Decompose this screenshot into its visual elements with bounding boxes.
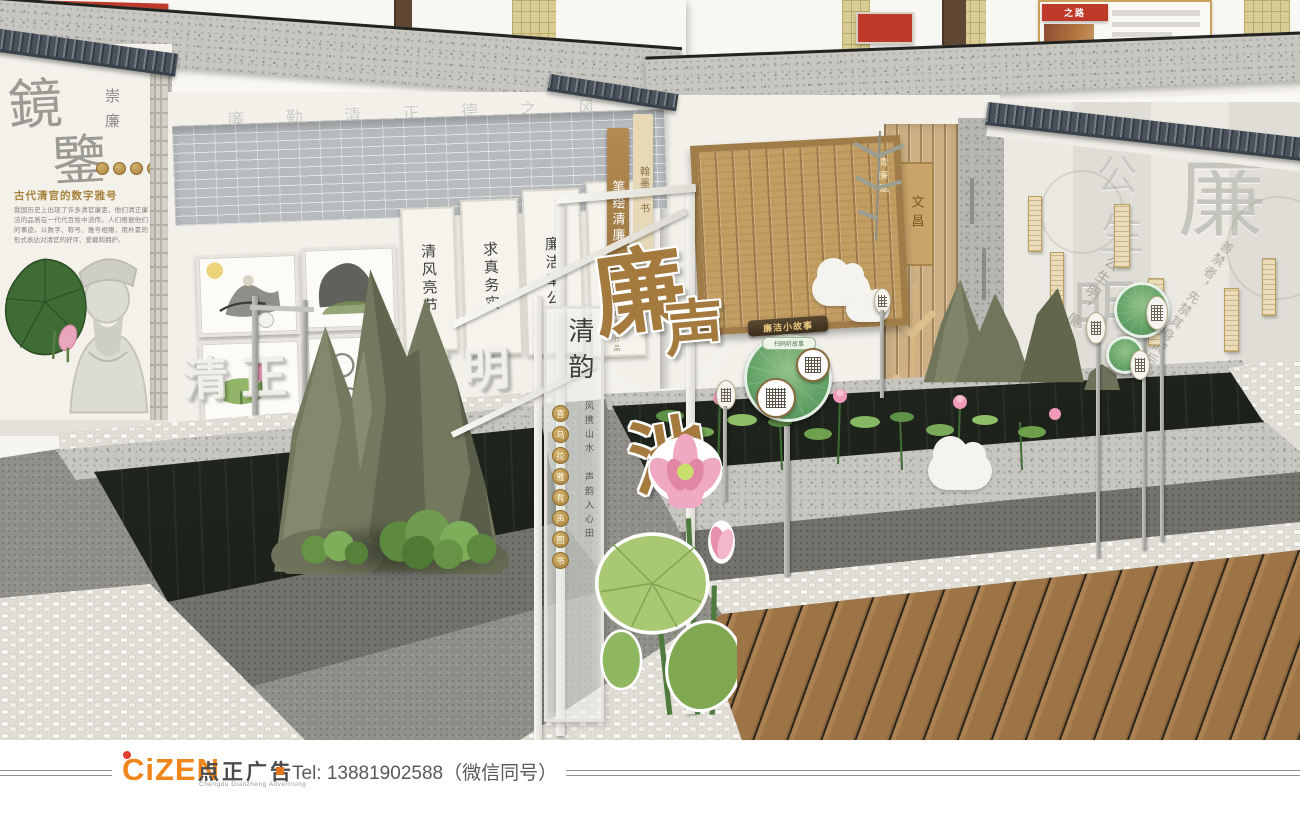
hanging-scroll	[1114, 204, 1130, 268]
qr-oval-sign	[1130, 350, 1150, 380]
red-display-small	[856, 12, 914, 44]
mirror-heading: 古代清官的数字雅号	[14, 188, 118, 203]
logo-subtitle: Chengdu Dianzheng Advertising	[199, 781, 306, 788]
shrub-cluster	[372, 492, 502, 572]
footer-bar: CiZEN 点正广告 Chengdu Dianzheng Advertising…	[0, 740, 1300, 813]
glass-title: 清韵	[561, 317, 598, 389]
medallion: 有	[552, 489, 569, 506]
lotus-cutout-art	[582, 420, 737, 720]
relief-char: 清	[181, 351, 229, 407]
sign-post	[1096, 318, 1100, 558]
sign-post	[784, 426, 790, 576]
qr-oval-sign	[1146, 296, 1168, 330]
shrub-small	[292, 520, 374, 572]
fence-post	[252, 296, 258, 434]
qr-oval-sign	[1086, 312, 1106, 344]
cloud-cutout	[928, 452, 992, 490]
story-banner-label: 廉洁小故事	[763, 318, 814, 334]
mirror-side-label: 崇廉	[102, 88, 123, 138]
footer-tel: Tel: 13881902588（微信同号）	[292, 758, 557, 785]
ribbon-label: 之路	[1064, 6, 1086, 19]
scan-pill-label: 扫码听故事	[774, 339, 804, 348]
board-textbar	[1112, 10, 1200, 16]
medallion: 喜	[552, 405, 569, 422]
frame-post-near	[534, 296, 542, 740]
lotus-lineart	[1040, 170, 1124, 254]
hanging-scroll	[1028, 196, 1042, 252]
story-leaf-sign: 廉洁小故事 扫码听故事	[740, 318, 836, 580]
medallion: 图	[552, 531, 569, 548]
board-textbar	[1112, 22, 1200, 27]
pond-name-char: 声	[660, 278, 727, 370]
medallion: 马	[552, 426, 569, 443]
medallion: 拉	[552, 447, 569, 464]
hanging-scroll	[1224, 288, 1239, 352]
qr-plaque	[796, 348, 830, 382]
footer-bullet	[276, 767, 284, 775]
sign-post	[1160, 312, 1164, 542]
hanging-scroll	[1262, 258, 1276, 316]
footer-rule-right	[566, 770, 1300, 776]
medallion: 书	[552, 552, 569, 569]
footer-rule-left	[0, 770, 112, 776]
mirror-title-char2: 鑒	[50, 115, 108, 197]
medallion-column: 喜 马 拉 雅 有 声 图 书	[552, 405, 569, 569]
seal-stamp	[113, 162, 126, 175]
seal-stamp	[130, 162, 143, 175]
mini-sign-post	[880, 310, 884, 398]
exhibition-hall-rendering: 之路 鏡 鑒 崇廉 古代清官的数字雅号 我国历史上出现了许多清官廉吏，他们清正廉…	[0, 0, 1300, 740]
lotus-leaf-decor	[0, 240, 94, 380]
medallion: 雅	[552, 468, 569, 485]
red-ribbon: 之路	[1042, 4, 1108, 21]
pillar-inscription	[970, 178, 974, 224]
qr-plaque	[756, 378, 796, 418]
rockery-right	[912, 262, 1092, 384]
medallion: 声	[552, 510, 569, 527]
story-banner: 廉洁小故事	[748, 315, 829, 337]
seal-stamp	[96, 162, 109, 175]
bamboo-branch-decor	[850, 126, 910, 246]
